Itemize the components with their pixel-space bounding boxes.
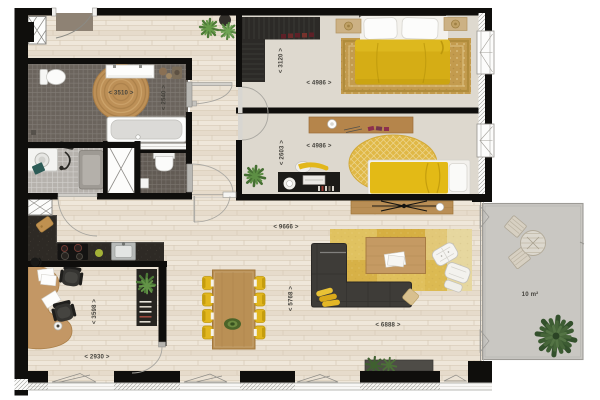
svg-text:< 2540 >: < 2540 > — [161, 85, 168, 111]
svg-text:10 m²: 10 m² — [522, 291, 539, 298]
svg-text:< 9666 >: < 9666 > — [273, 224, 299, 231]
svg-text:< 4986 >: < 4986 > — [306, 80, 332, 87]
svg-text:< 4986 >: < 4986 > — [306, 143, 332, 150]
svg-text:< 3510 >: < 3510 > — [108, 90, 134, 97]
svg-text:< 6888 >: < 6888 > — [375, 322, 401, 329]
svg-text:< 3598 >: < 3598 > — [91, 299, 98, 325]
svg-text:< 3120 >: < 3120 > — [278, 48, 285, 74]
svg-text:< 5768 >: < 5768 > — [288, 286, 295, 312]
svg-text:< 2930 >: < 2930 > — [84, 354, 110, 361]
svg-text:< 2603 >: < 2603 > — [279, 140, 286, 166]
